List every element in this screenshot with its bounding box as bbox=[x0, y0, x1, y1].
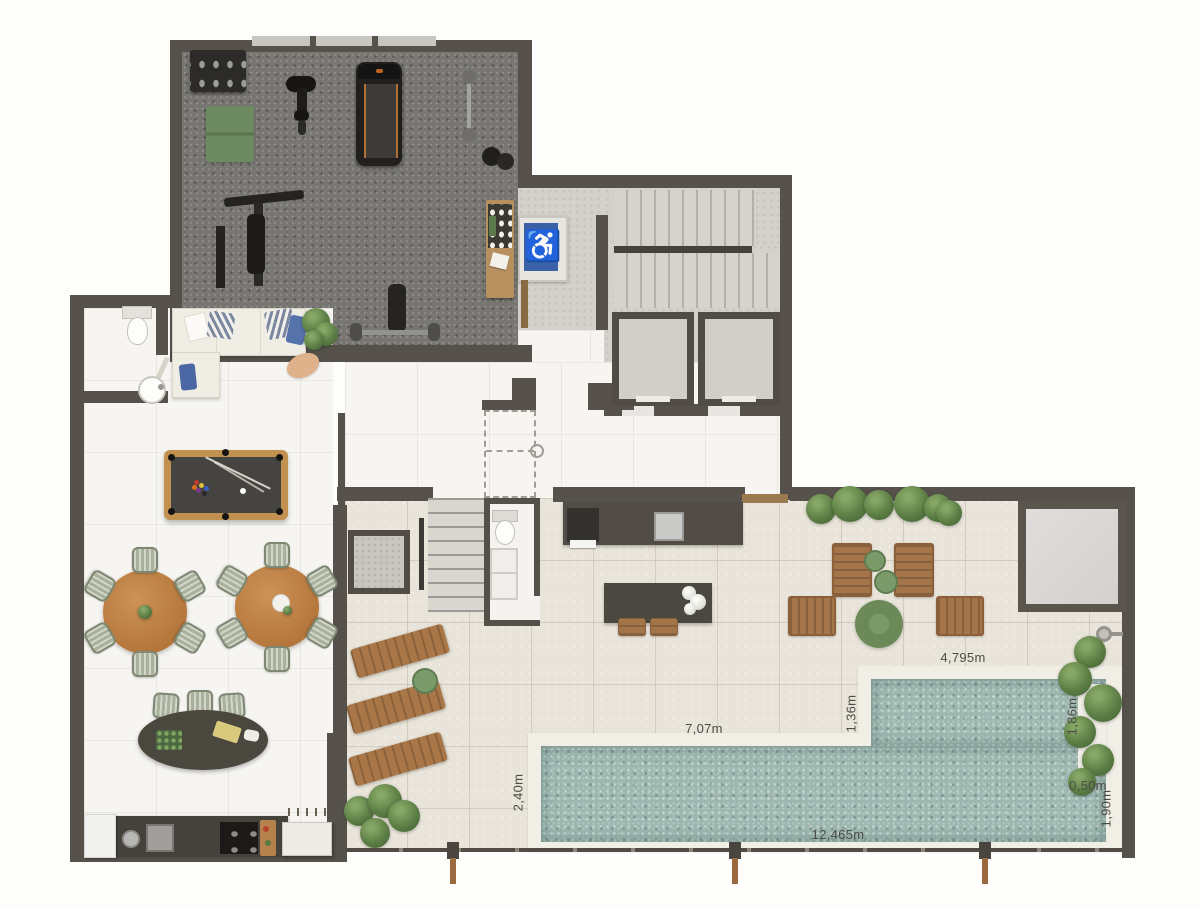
elevator-1-door bbox=[636, 396, 670, 402]
elevator-2-door bbox=[722, 396, 756, 402]
gym-window-mullion-1 bbox=[310, 36, 316, 46]
stairs-down bbox=[428, 498, 484, 612]
landing-handrail bbox=[521, 280, 528, 328]
railing-post-1-leg bbox=[450, 858, 456, 884]
tech-area bbox=[1018, 501, 1126, 612]
terrace-wall-west bbox=[337, 487, 433, 501]
gym-bench bbox=[388, 284, 406, 332]
lounge-chair-1 bbox=[832, 543, 872, 597]
bar-back-wall bbox=[553, 487, 745, 502]
treadmill-display bbox=[376, 69, 383, 73]
railing-post-2 bbox=[729, 842, 741, 859]
bar-sink bbox=[654, 512, 684, 541]
cue-ball bbox=[240, 488, 246, 494]
pocket-br bbox=[276, 508, 283, 515]
pocket-bm bbox=[222, 513, 229, 520]
elevator-1 bbox=[612, 312, 694, 406]
dumbbell-rack bbox=[190, 50, 246, 92]
measurement-pool-upper-top: 4,795m bbox=[917, 650, 1009, 665]
elevator-2 bbox=[698, 312, 780, 406]
bathroom-sink bbox=[138, 376, 166, 404]
stairs-down-handrail bbox=[419, 518, 424, 590]
lounge-chair-4 bbox=[936, 596, 984, 636]
sofa-pillow-striped-1 bbox=[206, 310, 235, 339]
floor-plan: ♿ bbox=[0, 0, 1200, 907]
toilet-bowl bbox=[127, 317, 148, 345]
exercise-mats bbox=[206, 106, 254, 162]
bench-press-side-rack bbox=[216, 226, 225, 288]
measurement-pool-lower-top: 7,07m bbox=[660, 721, 748, 736]
dining-chair bbox=[264, 646, 290, 672]
ceiling-opening-midline bbox=[486, 450, 534, 452]
measurement-pool-upper-left: 1,36m bbox=[844, 691, 859, 737]
railing-post-1 bbox=[447, 842, 459, 859]
billiard-balls bbox=[194, 480, 199, 485]
core-wall-top bbox=[518, 175, 792, 188]
lounge-chair-2 bbox=[894, 543, 934, 597]
railing-post-3 bbox=[979, 842, 991, 859]
floor-drain-stem bbox=[1110, 632, 1123, 636]
floor-barbell-plate-right bbox=[428, 323, 440, 341]
measurement-pool-lower-bottom: 12,465m bbox=[788, 827, 888, 842]
bar-wood-shelf bbox=[742, 494, 788, 503]
lounger-side-table bbox=[412, 668, 438, 694]
accessible-sign: ♿ bbox=[524, 223, 558, 271]
kitchen-prep-table bbox=[282, 822, 332, 856]
standing-barbell-plate-bottom bbox=[462, 128, 476, 142]
gym-wall-right bbox=[518, 40, 532, 180]
cutting-board bbox=[260, 820, 276, 856]
stair-flight-upper bbox=[614, 190, 754, 246]
dining-table-2-centerpiece bbox=[283, 606, 292, 615]
bar-appliance bbox=[567, 508, 599, 542]
stair-landing-right bbox=[754, 190, 780, 246]
core-wall-left bbox=[596, 215, 608, 330]
side-table-2 bbox=[874, 570, 898, 594]
bench-press-pad bbox=[247, 214, 265, 274]
gym-window bbox=[252, 36, 436, 46]
pocket-bl bbox=[168, 508, 175, 515]
measurement-pool-upper-right: 1,86m bbox=[1065, 694, 1080, 740]
bathroom-faucet bbox=[158, 384, 164, 390]
cooktop bbox=[220, 822, 258, 854]
billiards-table bbox=[164, 450, 288, 520]
railing-post-2-leg bbox=[732, 858, 738, 884]
side-table-1 bbox=[864, 550, 886, 572]
spin-bike-flywheel bbox=[298, 120, 306, 135]
railing-post-3-leg bbox=[982, 858, 988, 884]
dining-chair bbox=[264, 542, 290, 568]
kitchen-round-sink bbox=[122, 830, 140, 848]
pocket-tr bbox=[276, 454, 283, 461]
measurement-pool-lower-left: 2,40m bbox=[511, 770, 526, 816]
outdoor-rug bbox=[855, 600, 903, 648]
wc-sink-counter bbox=[490, 548, 518, 600]
cutting-board-food-1 bbox=[263, 826, 269, 832]
oval-table-dish bbox=[243, 729, 260, 742]
cutting-board-food-2 bbox=[265, 840, 271, 846]
lounge-wall-left bbox=[70, 295, 84, 862]
standing-barbell-plate-top bbox=[462, 70, 476, 84]
sofa-pillow-blue-2 bbox=[179, 363, 198, 391]
stair-center-rail bbox=[614, 246, 752, 253]
bathroom-wall-right bbox=[156, 303, 168, 355]
dining-chair bbox=[132, 651, 158, 677]
kettlebell-2 bbox=[497, 153, 514, 170]
wc-sink-divider bbox=[492, 572, 516, 574]
pocket-tm bbox=[222, 449, 229, 456]
ceiling-opening-marker bbox=[530, 444, 544, 458]
dining-table-1-centerpiece bbox=[138, 605, 152, 619]
treadmill-belt bbox=[364, 84, 398, 158]
refrigerator bbox=[84, 814, 116, 858]
spin-bike-frame bbox=[297, 88, 307, 112]
pocket-tl bbox=[168, 454, 175, 461]
measurement-pool-lower-right: 1,90m bbox=[1099, 786, 1114, 832]
wc-toilet-bowl bbox=[495, 520, 515, 545]
gym-window-mullion-2 bbox=[372, 36, 378, 46]
oval-table-plant-box bbox=[156, 730, 182, 750]
lounge-chair-3 bbox=[788, 596, 836, 636]
floor-barbell-plate-left bbox=[350, 323, 362, 341]
bar-towel bbox=[570, 540, 596, 548]
floor-barbell-bar bbox=[354, 330, 434, 335]
concrete-pad bbox=[348, 530, 410, 594]
hall-wall-stub-v bbox=[512, 378, 536, 402]
bar-stool-1 bbox=[618, 618, 646, 636]
core-wall-right bbox=[780, 178, 792, 500]
supplement-green-item bbox=[489, 216, 496, 236]
lounge-wall-right bbox=[333, 505, 347, 733]
kitchen-basin bbox=[146, 824, 174, 852]
stair-flight-lower bbox=[614, 253, 780, 308]
weight-plate-row bbox=[481, 180, 517, 189]
ceiling-opening-dashed bbox=[484, 410, 536, 498]
bar-stool-2 bbox=[650, 618, 678, 636]
wheelchair-icon: ♿ bbox=[524, 230, 561, 263]
dining-chair bbox=[132, 547, 158, 573]
wc-door-gap bbox=[534, 596, 540, 620]
utensil-rack bbox=[288, 808, 328, 816]
